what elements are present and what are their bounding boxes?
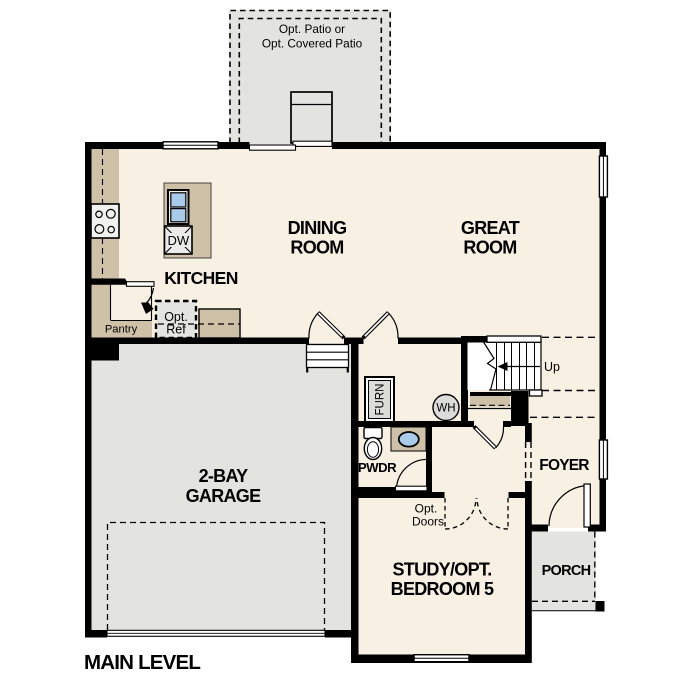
- svg-text:ROOM: ROOM: [290, 238, 343, 258]
- svg-text:Pantry: Pantry: [105, 324, 138, 336]
- svg-text:Up: Up: [544, 360, 560, 374]
- svg-text:BEDROOM 5: BEDROOM 5: [391, 579, 494, 599]
- svg-text:GREAT: GREAT: [461, 218, 520, 238]
- svg-text:WH: WH: [436, 403, 455, 415]
- svg-text:2-BAY: 2-BAY: [199, 466, 249, 486]
- svg-text:MAIN LEVEL: MAIN LEVEL: [84, 651, 200, 674]
- svg-text:Opt. Patio or: Opt. Patio or: [279, 22, 345, 36]
- svg-text:STUDY/OPT.: STUDY/OPT.: [392, 560, 491, 580]
- svg-text:FOYER: FOYER: [539, 457, 589, 474]
- svg-text:PWDR: PWDR: [358, 460, 397, 475]
- svg-text:DINING: DINING: [288, 218, 347, 238]
- svg-text:GARAGE: GARAGE: [186, 486, 261, 506]
- svg-text:Opt. Covered Patio: Opt. Covered Patio: [262, 37, 363, 51]
- svg-text:KITCHEN: KITCHEN: [164, 268, 238, 288]
- svg-text:PORCH: PORCH: [542, 563, 591, 579]
- svg-text:FURN: FURN: [375, 384, 387, 416]
- svg-text:ROOM: ROOM: [463, 238, 516, 258]
- svg-text:Opt.: Opt.: [415, 502, 438, 516]
- svg-text:Doors: Doors: [412, 515, 444, 529]
- svg-text:DW: DW: [167, 233, 189, 248]
